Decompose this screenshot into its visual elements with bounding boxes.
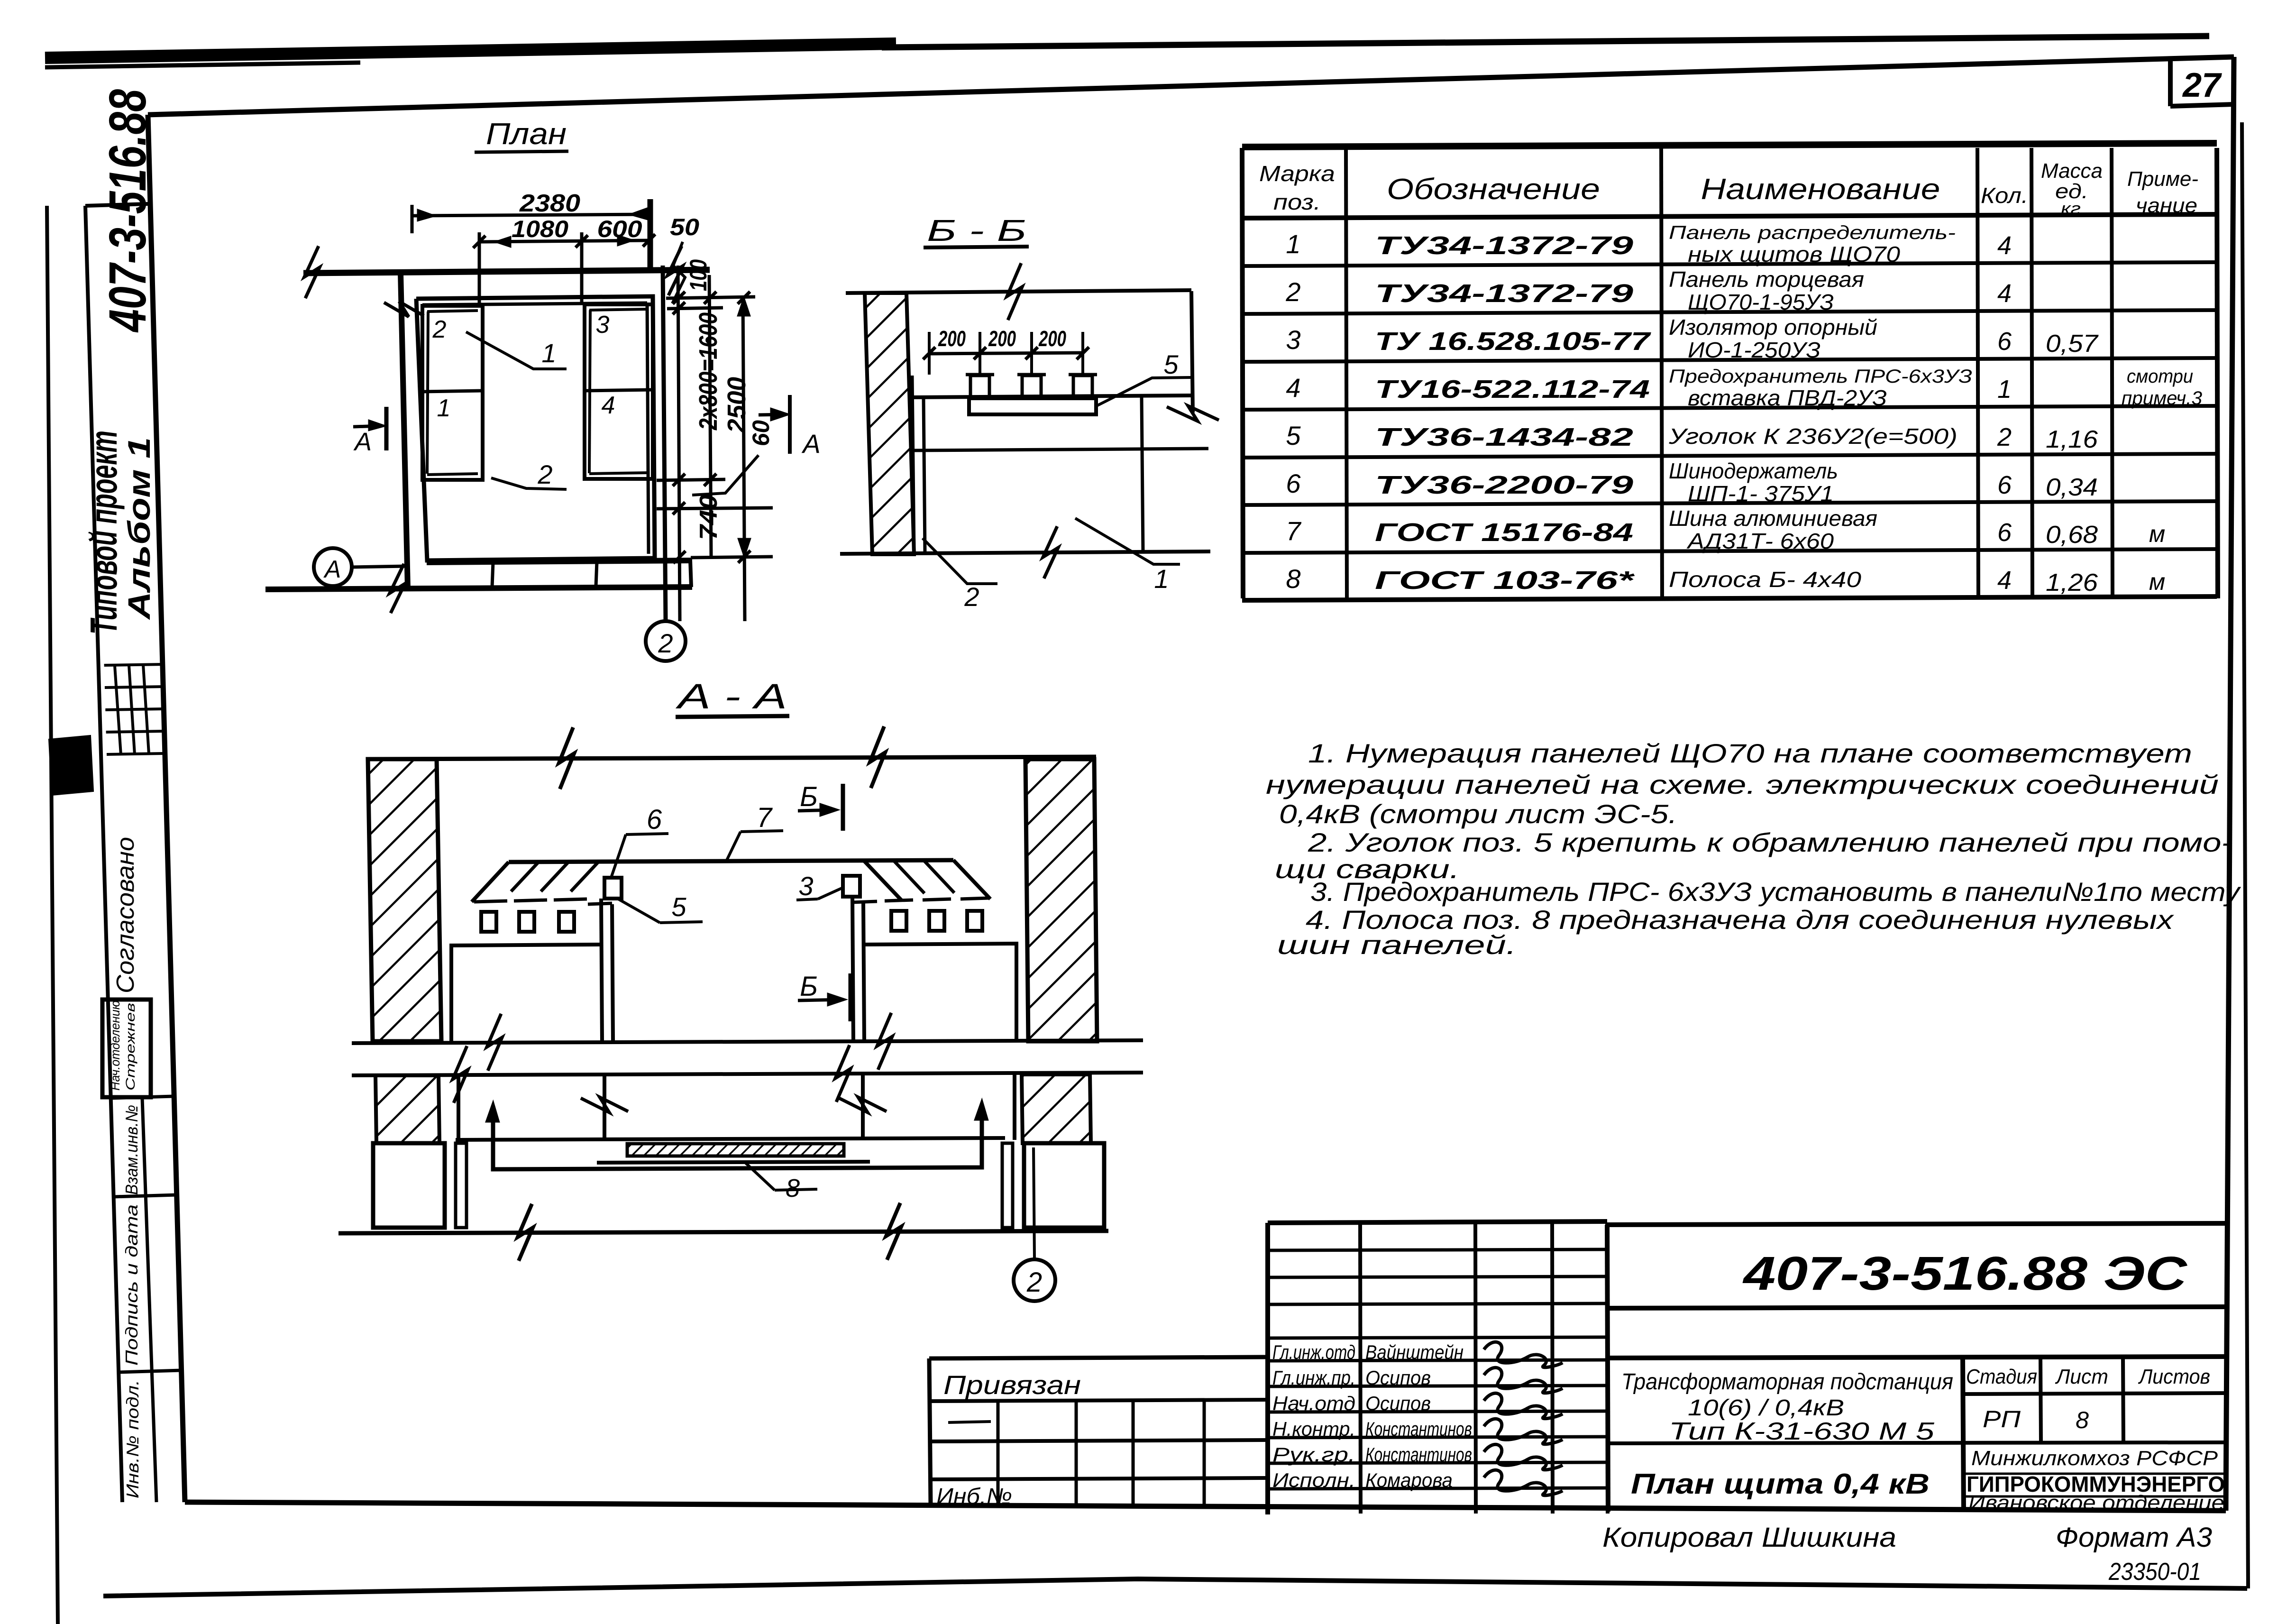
svg-text:ТУ34-1372-79: ТУ34-1372-79 [1375,231,1633,260]
svg-text:2: 2 [1285,277,1300,307]
svg-text:7: 7 [1286,516,1301,546]
svg-text:Взам.инв.№: Взам.инв.№ [122,1105,141,1195]
svg-text:Наименование: Наименование [1701,173,1940,206]
svg-text:АД31Т- 6х60: АД31Т- 6х60 [1686,529,1834,553]
svg-text:Шинодержатель: Шинодержатель [1669,459,1838,483]
svg-text:м: м [2149,569,2165,595]
svg-text:Предохранитель ПРС-6х3УЗ: Предохранитель ПРС-6х3УЗ [1669,366,1972,387]
svg-text:27: 27 [2182,66,2222,104]
svg-text:Инб.№: Инб.№ [936,1484,1012,1509]
svg-text:шин панелей.: шин панелей. [1277,930,1517,960]
svg-text:Исполн.: Исполн. [1272,1469,1355,1491]
svg-text:4: 4 [1997,566,2012,595]
svg-text:Комарова: Комарова [1365,1469,1453,1491]
svg-text:примеч.3: примеч.3 [2122,388,2202,409]
svg-text:3: 3 [798,871,813,901]
svg-text:1,16: 1,16 [2046,426,2098,453]
svg-text:6: 6 [647,804,662,835]
svg-text:10(6) / 0,4кВ: 10(6) / 0,4кВ [1688,1395,1844,1421]
svg-text:Б: Б [800,781,818,812]
svg-text:1. Нумерация панелей ЩО70 на п: 1. Нумерация панелей ЩО70 на плане соотв… [1308,738,2192,768]
svg-text:А: А [801,429,820,459]
svg-text:Изолятор опорный: Изолятор опорный [1669,315,1877,339]
svg-text:2: 2 [1026,1267,1042,1298]
svg-text:А: А [353,428,372,456]
svg-text:1,26: 1,26 [2046,569,2098,596]
svg-text:740: 740 [695,495,723,540]
svg-text:200: 200 [988,326,1016,351]
svg-text:Б: Б [800,971,818,1002]
svg-text:Гл.инж.пр.: Гл.инж.пр. [1272,1367,1355,1389]
svg-text:ТУ16-522.112-74: ТУ16-522.112-74 [1375,375,1650,404]
svg-text:6: 6 [1997,471,2012,499]
svg-text:1: 1 [1286,229,1300,259]
svg-text:6: 6 [1286,468,1301,498]
svg-text:Панель распределитель-: Панель распределитель- [1669,222,1956,243]
svg-text:нумерации панелей на схеме. эл: нумерации панелей на схеме. электрически… [1266,770,2219,799]
svg-text:Константинов: Константинов [1365,1443,1472,1466]
svg-text:Трансформаторная подстанция: Трансформаторная подстанция [1621,1369,1953,1395]
svg-text:Листов: Листов [2138,1365,2210,1388]
svg-text:Привязан: Привязан [943,1370,1081,1400]
svg-text:3: 3 [596,311,610,339]
svg-text:Рук.гр.: Рук.гр. [1272,1443,1355,1466]
svg-text:4: 4 [1286,373,1300,403]
svg-text:РП: РП [1983,1406,2021,1432]
svg-text:0,57: 0,57 [2046,330,2099,358]
svg-text:ЩО70-1-95УЗ: ЩО70-1-95УЗ [1688,290,1834,314]
svg-text:кг: кг [2061,199,2081,218]
svg-text:ТУ34-1372-79: ТУ34-1372-79 [1375,279,1633,308]
svg-text:Марка: Марка [1259,161,1335,186]
svg-text:Формат А3: Формат А3 [2056,1522,2212,1553]
svg-text:ИО-1-250УЗ: ИО-1-250УЗ [1688,338,1820,362]
svg-text:ТУ36-2200-79: ТУ36-2200-79 [1375,471,1633,499]
svg-text:3. Предохранитель ПРС- 6х3УЗ у: 3. Предохранитель ПРС- 6х3УЗ установить … [1310,877,2241,907]
svg-text:Нач.отд: Нач.отд [1272,1392,1355,1414]
svg-text:2. Уголок поз. 5 крепить к обр: 2. Уголок поз. 5 крепить к обрамлению па… [1308,827,2232,857]
svg-text:8: 8 [2076,1407,2089,1433]
svg-text:ГОСТ 103-76*: ГОСТ 103-76* [1375,566,1636,595]
svg-text:Панель торцевая: Панель торцевая [1669,267,1864,292]
svg-text:Инв.№ подл.: Инв.№ подл. [123,1380,142,1498]
svg-text:100: 100 [685,259,712,291]
svg-text:2: 2 [1997,423,2012,451]
svg-text:Осипов: Осипов [1365,1392,1431,1414]
svg-text:А - А: А - А [675,677,787,716]
svg-text:План: План [486,117,567,151]
svg-text:Шина алюминиевая: Шина алюминиевая [1669,506,1877,531]
svg-text:Гл.инж.отд: Гл.инж.отд [1272,1341,1355,1363]
svg-text:смотри: смотри [2127,366,2193,387]
svg-text:4: 4 [602,392,615,419]
svg-text:2: 2 [964,582,979,612]
svg-text:Обозначение: Обозначение [1387,173,1600,206]
svg-text:Кол.: Кол. [1981,183,2028,208]
svg-text:Согласовано: Согласовано [112,837,139,993]
svg-text:0,34: 0,34 [2046,474,2098,501]
svg-text:50: 50 [670,214,699,240]
svg-text:Альбом 1: Альбом 1 [121,437,156,620]
svg-text:5: 5 [1163,349,1179,379]
svg-text:Вайнштейн: Вайнштейн [1365,1341,1464,1363]
svg-text:м: м [2149,521,2165,547]
svg-text:Константинов: Константинов [1365,1418,1472,1440]
svg-text:Уголок К 236У2(е=500): Уголок К 236У2(е=500) [1668,424,1958,449]
svg-text:Типовой проект: Типовой проект [82,431,125,634]
svg-text:ТУ36-1434-82: ТУ36-1434-82 [1375,423,1633,451]
svg-text:6: 6 [1997,327,2012,356]
svg-text:1: 1 [541,338,556,368]
svg-text:Масса: Масса [2041,159,2103,183]
svg-text:4: 4 [1997,231,2012,260]
svg-text:1: 1 [1154,564,1169,594]
svg-text:чание: чание [2136,194,2197,217]
svg-text:Минжилкомхоз РСФСР: Минжилкомхоз РСФСР [1971,1447,2218,1470]
svg-text:Осипов: Осипов [1365,1367,1431,1389]
svg-text:Стрежнев: Стрежнев [123,1003,137,1091]
svg-text:Подпись и дата: Подпись и дата [122,1204,141,1366]
svg-text:ШП-1- 375У1: ШП-1- 375У1 [1688,481,1834,506]
svg-text:ТУ 16.528.105-77: ТУ 16.528.105-77 [1375,327,1652,356]
svg-text:А: А [323,556,341,583]
svg-text:Приме-: Приме- [2127,167,2198,191]
svg-text:3: 3 [1286,325,1300,355]
svg-text:7: 7 [757,802,773,833]
svg-text:Ивановское отделение: Ивановское отделение [1968,1491,2224,1514]
svg-text:поз.: поз. [1273,190,1321,214]
svg-text:200: 200 [1038,326,1066,351]
svg-text:2: 2 [537,459,552,489]
svg-text:0,4кВ (смотри лист ЭС-5.: 0,4кВ (смотри лист ЭС-5. [1279,799,1677,829]
svg-text:Стадия: Стадия [1966,1365,2037,1388]
svg-text:407-3-516.88 ЭС: 407-3-516.88 ЭС [1742,1247,2188,1300]
svg-text:ГОСТ 15176-84: ГОСТ 15176-84 [1375,518,1633,547]
svg-text:1: 1 [1997,375,2012,404]
svg-text:План щита 0,4 кВ: План щита 0,4 кВ [1631,1468,1930,1500]
svg-text:Копировал Шишкина: Копировал Шишкина [1602,1522,1896,1553]
svg-text:Б - Б: Б - Б [927,213,1026,248]
svg-text:2х800=1600: 2х800=1600 [694,312,723,431]
svg-text:2: 2 [432,316,447,343]
svg-text:Полоса Б- 4х40: Полоса Б- 4х40 [1669,567,1861,592]
svg-text:Н.контр.: Н.контр. [1272,1418,1355,1440]
svg-text:60: 60 [748,420,774,446]
svg-text:407-3-516.88: 407-3-516.88 [99,89,157,332]
svg-text:6: 6 [1997,518,2012,547]
svg-text:Нач.отделению: Нач.отделению [108,1000,122,1091]
svg-text:ных щитов ЩО70: ных щитов ЩО70 [1688,242,1900,266]
svg-text:1: 1 [437,395,451,422]
svg-text:2380: 2380 [519,190,580,217]
svg-text:200: 200 [938,326,966,351]
svg-text:5: 5 [1286,421,1301,450]
svg-text:23350-01: 23350-01 [2108,1558,2201,1586]
svg-text:2: 2 [658,628,673,658]
svg-text:вставка ПВД-2УЗ: вставка ПВД-2УЗ [1688,385,1887,410]
svg-text:4: 4 [1997,279,2012,308]
svg-text:8: 8 [1286,564,1300,594]
svg-text:Тип К-31-630 М 5: Тип К-31-630 М 5 [1669,1418,1935,1445]
svg-text:5: 5 [671,892,686,922]
svg-text:0,68: 0,68 [2046,521,2098,549]
svg-text:1080: 1080 [512,216,568,242]
svg-text:Лист: Лист [2055,1365,2108,1388]
svg-text:2500: 2500 [723,377,751,433]
